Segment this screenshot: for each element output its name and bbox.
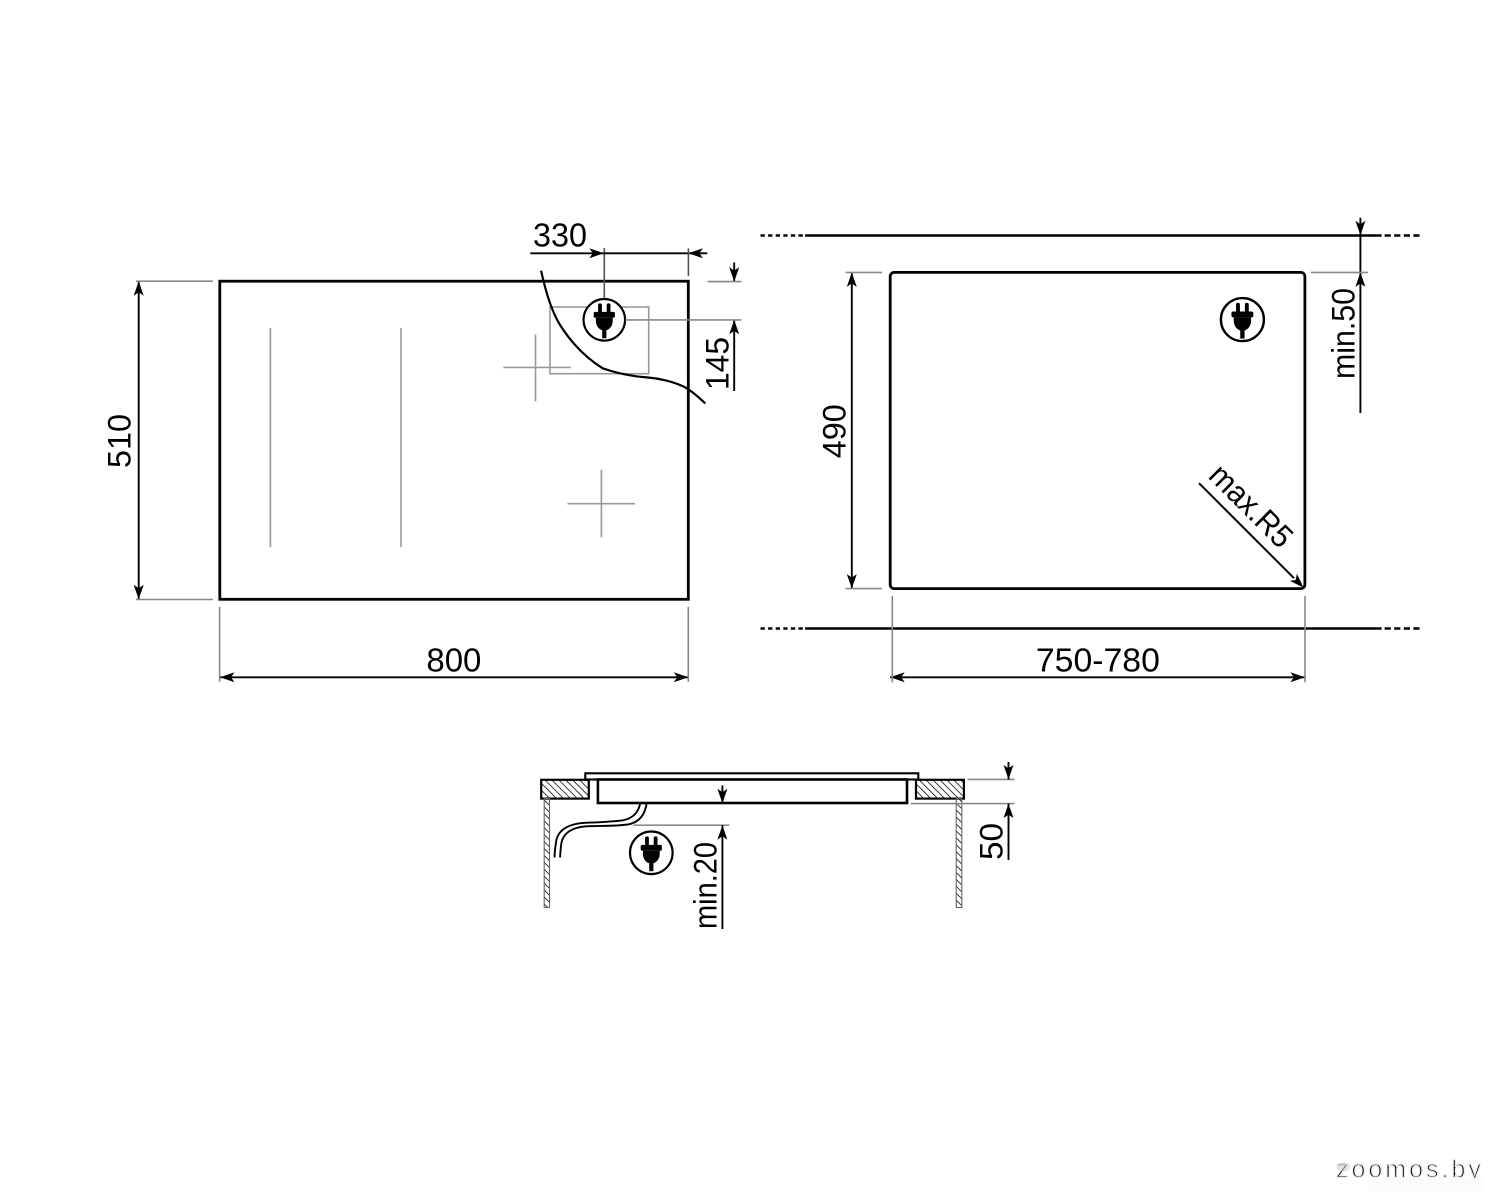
svg-text:510: 510 [101,414,137,468]
svg-text:800: 800 [426,642,481,679]
svg-text:330: 330 [533,217,587,254]
svg-text:min.50: min.50 [1325,288,1361,379]
svg-text:50: 50 [973,823,1009,860]
svg-text:min.20: min.20 [687,842,723,929]
svg-text:750-780: 750-780 [1036,642,1160,679]
svg-text:145: 145 [700,337,736,390]
svg-text:490: 490 [817,404,853,458]
